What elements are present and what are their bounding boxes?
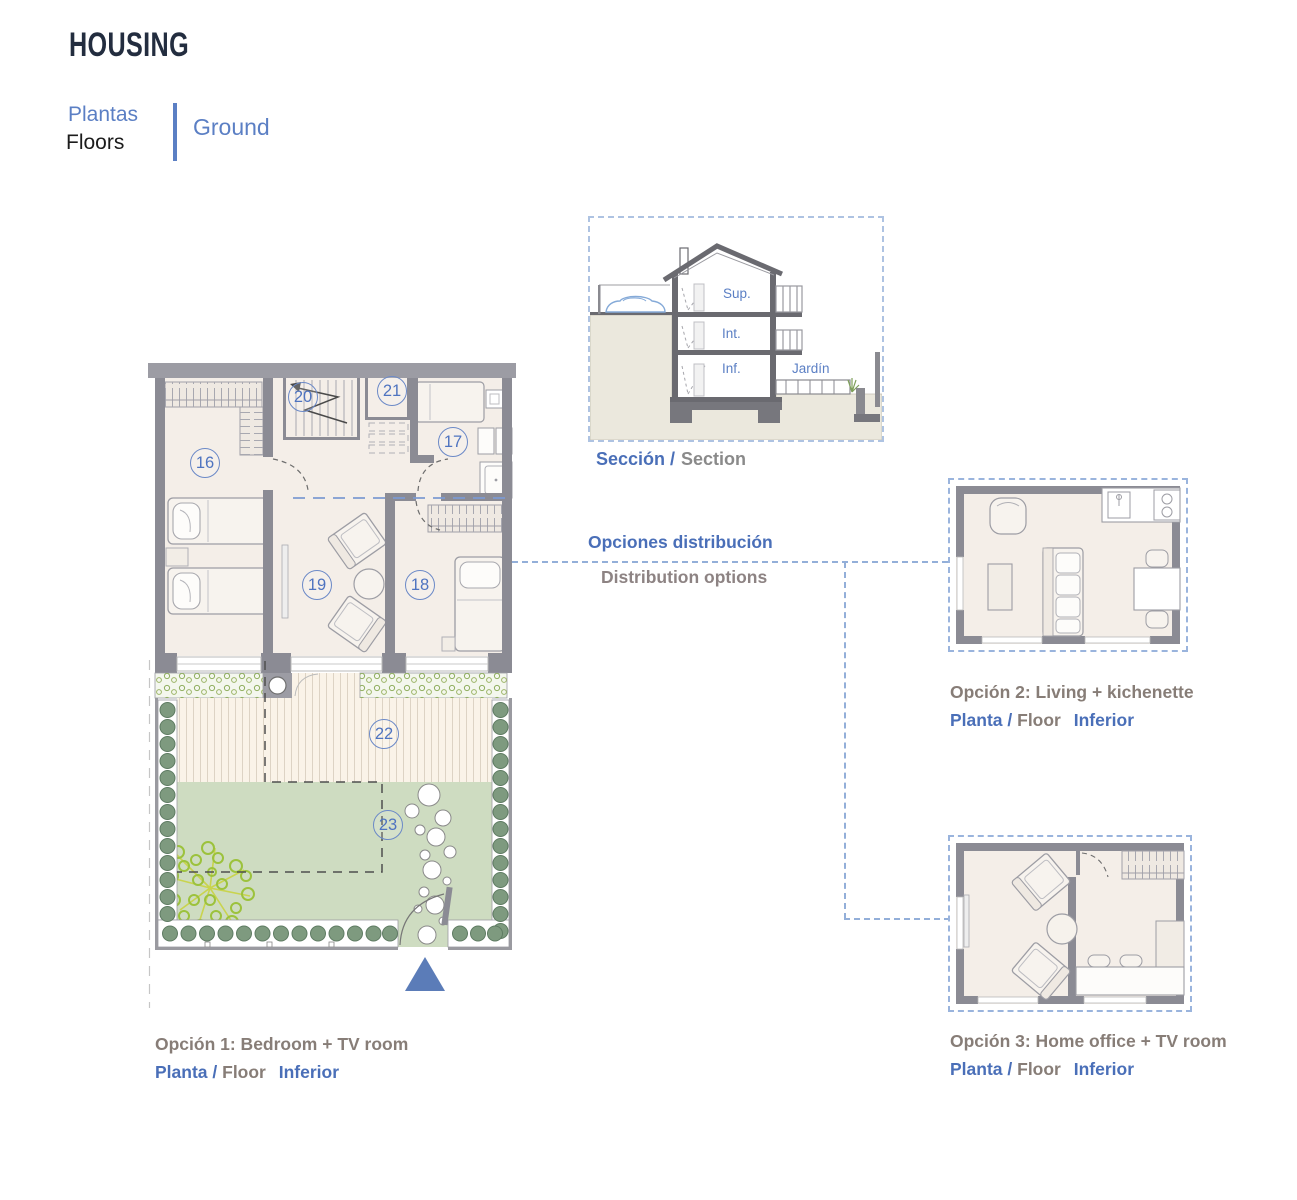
entrance-marker [405,957,445,991]
distribution-title-es: Opciones distribución [588,532,773,553]
option2-plan-box [948,478,1188,652]
bed-room16-b [168,568,268,614]
section-caption: Sección /Section [596,449,746,470]
connector-line-vertical [844,562,846,919]
table-room19 [354,569,384,599]
option2-floor-level: Inferior [1074,710,1134,730]
tv-board-room19 [282,545,288,618]
room-number-17: 17 [438,427,468,457]
room-number-18: 18 [405,570,435,600]
option1-floor-line: Planta / Floor Inferior [155,1062,339,1083]
planter-row [155,673,507,698]
option3-plan-box [948,835,1192,1012]
room-number-20: 20 [288,382,318,412]
distribution-title-en: Distribution options [601,567,767,588]
connector-line-horizontal [512,561,948,563]
tab-ground-floor[interactable]: Ground [193,114,270,141]
option3-floor-line: Planta / Floor Inferior [950,1059,1134,1080]
cabinet [1156,921,1184,967]
section-caption-en: Section [681,449,746,469]
option1-floor-en: Floor [222,1062,266,1082]
label-upper-floor: Sup. [723,286,751,301]
wood-deck [177,698,492,782]
room-number-19: 19 [302,570,332,600]
office-closet [1122,851,1184,879]
option2-floor-line: Planta / Floor Inferior [950,710,1134,731]
rear-windows [177,657,488,671]
label-garden: Jardín [792,361,830,376]
label-middle-floor: Int. [722,326,741,341]
housing-sheet: HOUSING Plantas Floors Ground [0,0,1297,1200]
sofa [1043,548,1083,636]
option3-plan-drawing [950,837,1190,1010]
option2-floor-es: Planta / [950,710,1012,730]
coffee-table [988,564,1012,610]
top-boundary-wall [148,363,516,378]
option3-title: Opción 3: Home office + TV room [950,1031,1227,1052]
label-lower-floor: Inf. [722,361,741,376]
option3-floor-en: Floor [1017,1059,1061,1079]
car-silhouette [606,297,665,313]
room-number-16: 16 [190,448,220,478]
option1-title: Opción 1: Bedroom + TV room [155,1034,408,1055]
round-table [1047,914,1077,944]
closet-room18 [428,505,508,532]
page-title: HOUSING [69,26,189,65]
option2-plan-drawing [950,480,1186,650]
subtitle-english: Floors [66,131,124,155]
subtitle-spanish: Plantas [68,103,138,127]
window-left [957,557,963,610]
subtitle-divider [173,103,177,161]
armchair [990,498,1026,534]
option3-floor-level: Inferior [1074,1059,1134,1079]
option1-floor-es: Planta / [155,1062,217,1082]
option2-floor-en: Floor [1017,710,1061,730]
section-caption-es: Sección / [596,449,675,469]
connector-line-to-option3 [844,918,950,920]
bed-room16-a [168,498,268,544]
kitchenette [1102,488,1180,522]
option2-title: Opción 2: Living + kichenette [950,682,1194,703]
nightstand-room16 [166,548,188,566]
room-number-22: 22 [369,719,399,749]
utility-drain [269,677,286,694]
section-drawing-box: Sup. Int. Inf. Jardín [588,216,884,442]
option1-floor-level: Inferior [279,1062,339,1082]
tv-board [964,895,969,947]
option3-floor-es: Planta / [950,1059,1012,1079]
room-number-23: 23 [373,810,403,840]
balcony-railings [776,286,802,350]
room-number-21: 21 [377,376,407,406]
